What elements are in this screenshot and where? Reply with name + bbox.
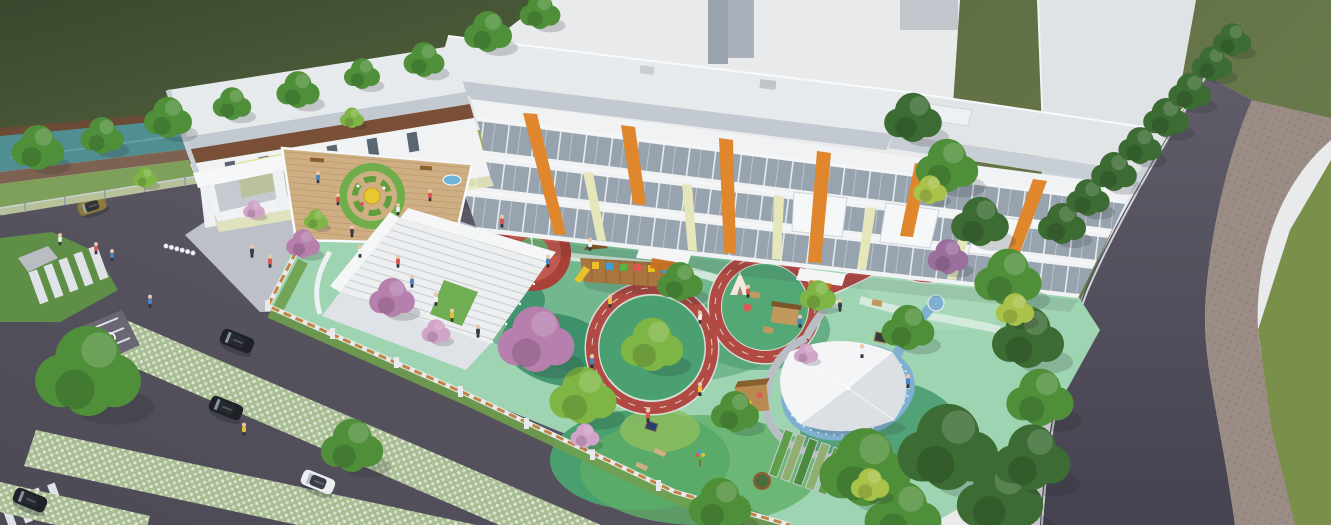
terrace-bench [420, 166, 432, 171]
tall-tower-face [728, 0, 754, 58]
architectural-render [0, 0, 1331, 525]
tall-tower [708, 0, 728, 64]
distant-tower [900, 0, 958, 30]
planter-tub [753, 472, 771, 490]
terrace-pool [443, 175, 461, 185]
roof-ac-unit [640, 65, 655, 75]
camp-hut [769, 301, 802, 326]
aerial-scene [0, 0, 1331, 525]
